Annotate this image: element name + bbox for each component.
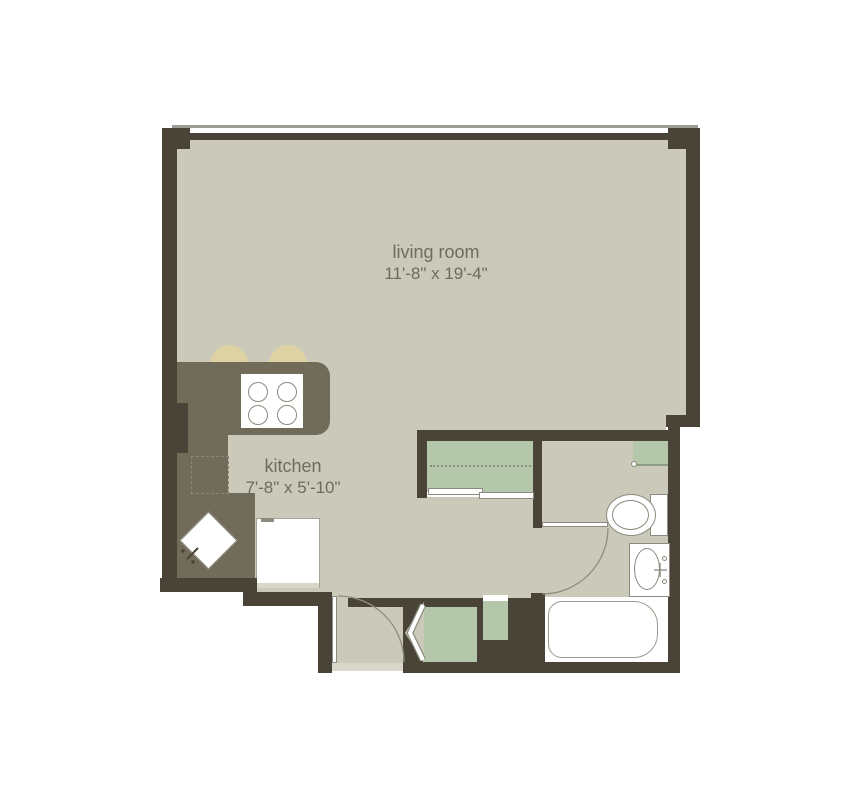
- kitchen-label: kitchen 7'-8" x 5'-10": [245, 456, 340, 498]
- wall-closet-left: [417, 430, 427, 498]
- hallway-floor: [417, 497, 542, 598]
- dishwasher-icon: [191, 456, 229, 494]
- shelf-pivot-dot: [631, 461, 637, 467]
- living-room-label: living room 11'-8" x 19'-4": [384, 242, 487, 284]
- burner-icon: [277, 405, 297, 425]
- bathroom-door-leaf: [542, 522, 608, 527]
- bathtub-icon: [548, 601, 658, 658]
- utility-closet-interior: [483, 601, 508, 640]
- wall-left: [162, 128, 177, 578]
- wall-left-pier: [176, 403, 188, 453]
- window-frame-line: [172, 125, 698, 128]
- entry-threshold: [332, 663, 403, 671]
- bifold-closet-interior: [423, 607, 477, 662]
- bifold-jamb: [415, 602, 424, 612]
- living-room-dimensions: 11'-8" x 19'-4": [384, 263, 487, 284]
- kitchen-dimensions: 7'-8" x 5'-10": [245, 477, 340, 498]
- floor-plan: living room 11'-8" x 19'-4" kitchen 7'-8…: [0, 0, 860, 800]
- vanity-sink-icon: [634, 548, 660, 590]
- refrigerator-front-strip: [257, 583, 319, 588]
- closet-rod-icon: [430, 465, 531, 467]
- vanity-knob-icon: [662, 579, 667, 584]
- sliding-door-panel: [479, 492, 534, 499]
- entry-door-leaf: [332, 596, 337, 663]
- toilet-bowl-inner: [612, 500, 649, 530]
- sliding-door-panel: [428, 488, 483, 495]
- wall-entry-left: [318, 592, 332, 673]
- burner-icon: [248, 382, 268, 402]
- window-icon: [186, 133, 670, 140]
- refrigerator-icon: [256, 518, 320, 588]
- living-room-name: living room: [384, 242, 487, 263]
- exterior-mask: [243, 606, 318, 800]
- bifold-jamb: [415, 653, 424, 663]
- vanity-knob-icon: [662, 556, 667, 561]
- wall-bottom-left-band: [160, 578, 257, 592]
- exterior-mask: [0, 592, 243, 800]
- wall-right-upper: [686, 145, 700, 427]
- wall-bathroom-left: [533, 430, 542, 528]
- kitchen-name: kitchen: [245, 456, 340, 477]
- refrigerator-handle-icon: [261, 518, 274, 522]
- burner-icon: [248, 405, 268, 425]
- burner-icon: [277, 382, 297, 402]
- wall-bedroom-closet-top: [417, 430, 670, 441]
- bathroom-shelf-icon: [633, 441, 668, 466]
- wall-bottom: [403, 662, 680, 673]
